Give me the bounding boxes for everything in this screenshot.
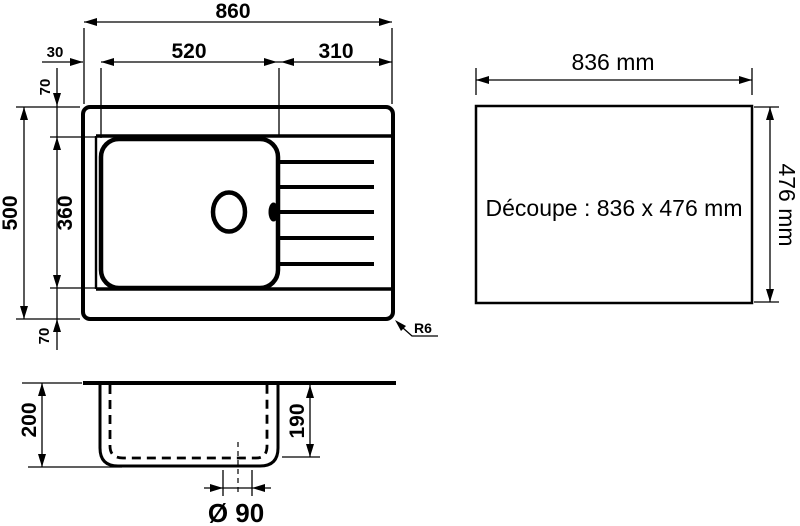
arrow-right (379, 18, 392, 26)
arrow-down (53, 275, 61, 288)
arrow-right (379, 58, 392, 66)
dim-text-bowl-depth: 360 (54, 195, 77, 230)
bowl-outline (101, 139, 278, 288)
arrow-left (101, 58, 114, 66)
dim-cutout-height: 476 mm (754, 107, 800, 302)
dim-text-overall-width: 860 (215, 0, 250, 23)
arrow-up (306, 385, 314, 398)
dim-bottom-rim: 70 (36, 328, 53, 345)
dim-text-drainer: 310 (318, 40, 353, 63)
overflow-hole (269, 203, 279, 222)
arrow-right (210, 484, 223, 492)
bowl-section-inner-dashed (110, 385, 267, 458)
dim-text-top-rim: 70 (37, 79, 54, 96)
dim-text-cutout-width: 836 mm (571, 49, 654, 75)
arrow-down (20, 306, 28, 319)
dim-text-overall-depth: 500 (0, 195, 22, 230)
arrow-up (20, 107, 28, 120)
dim-left-rim: 30 (42, 44, 83, 66)
sink-technical-drawing: 860 520 310 30 70 70 50 (0, 0, 800, 526)
callout-corner-radius: R6 (395, 320, 438, 336)
dim-text-cutout-height: 476 mm (774, 163, 800, 246)
section-view (83, 383, 396, 493)
drainboard-grooves (277, 162, 374, 264)
technical-drawing-page: 860 520 310 30 70 70 50 (0, 0, 800, 526)
arrow-down (766, 289, 774, 302)
arrow-up (53, 137, 61, 150)
callout-text-radius: R6 (414, 320, 432, 336)
dim-text-bowl-height: 190 (286, 403, 309, 438)
drain-hole-circle (213, 193, 245, 232)
arrow-down (306, 444, 314, 457)
bowl-section-outer (100, 385, 278, 466)
arrow-down (53, 93, 61, 106)
cutout-label: Découpe : 836 x 476 mm (486, 195, 743, 221)
arrow-up (53, 319, 61, 332)
arrow-right (739, 76, 752, 84)
arrow-left (84, 18, 97, 26)
arrow-up (766, 107, 774, 120)
arrow-left (476, 76, 489, 84)
dim-text-bowl-zone: 520 (171, 40, 206, 63)
cutout-panel: Découpe : 836 x 476 mm 836 mm 476 mm (476, 49, 800, 303)
dim-text-left-rim: 30 (47, 44, 64, 61)
dim-top-rim: 70 (37, 79, 54, 96)
arrow-left (281, 58, 294, 66)
top-view (83, 107, 393, 319)
dim-section-bowl-height: 190 (282, 385, 320, 457)
arrow-down (38, 454, 46, 467)
dim-text-section-height: 200 (18, 402, 41, 437)
arrow-up (38, 383, 46, 396)
dim-section-height: 200 (18, 383, 122, 467)
dim-text-bottom-rim: 70 (36, 328, 53, 345)
dim-cutout-width: 836 mm (476, 49, 752, 95)
arrow-right (70, 58, 83, 66)
arrow-right (264, 58, 277, 66)
dim-text-drain-diameter: Ø 90 (208, 498, 264, 526)
arrow-left (252, 484, 265, 492)
